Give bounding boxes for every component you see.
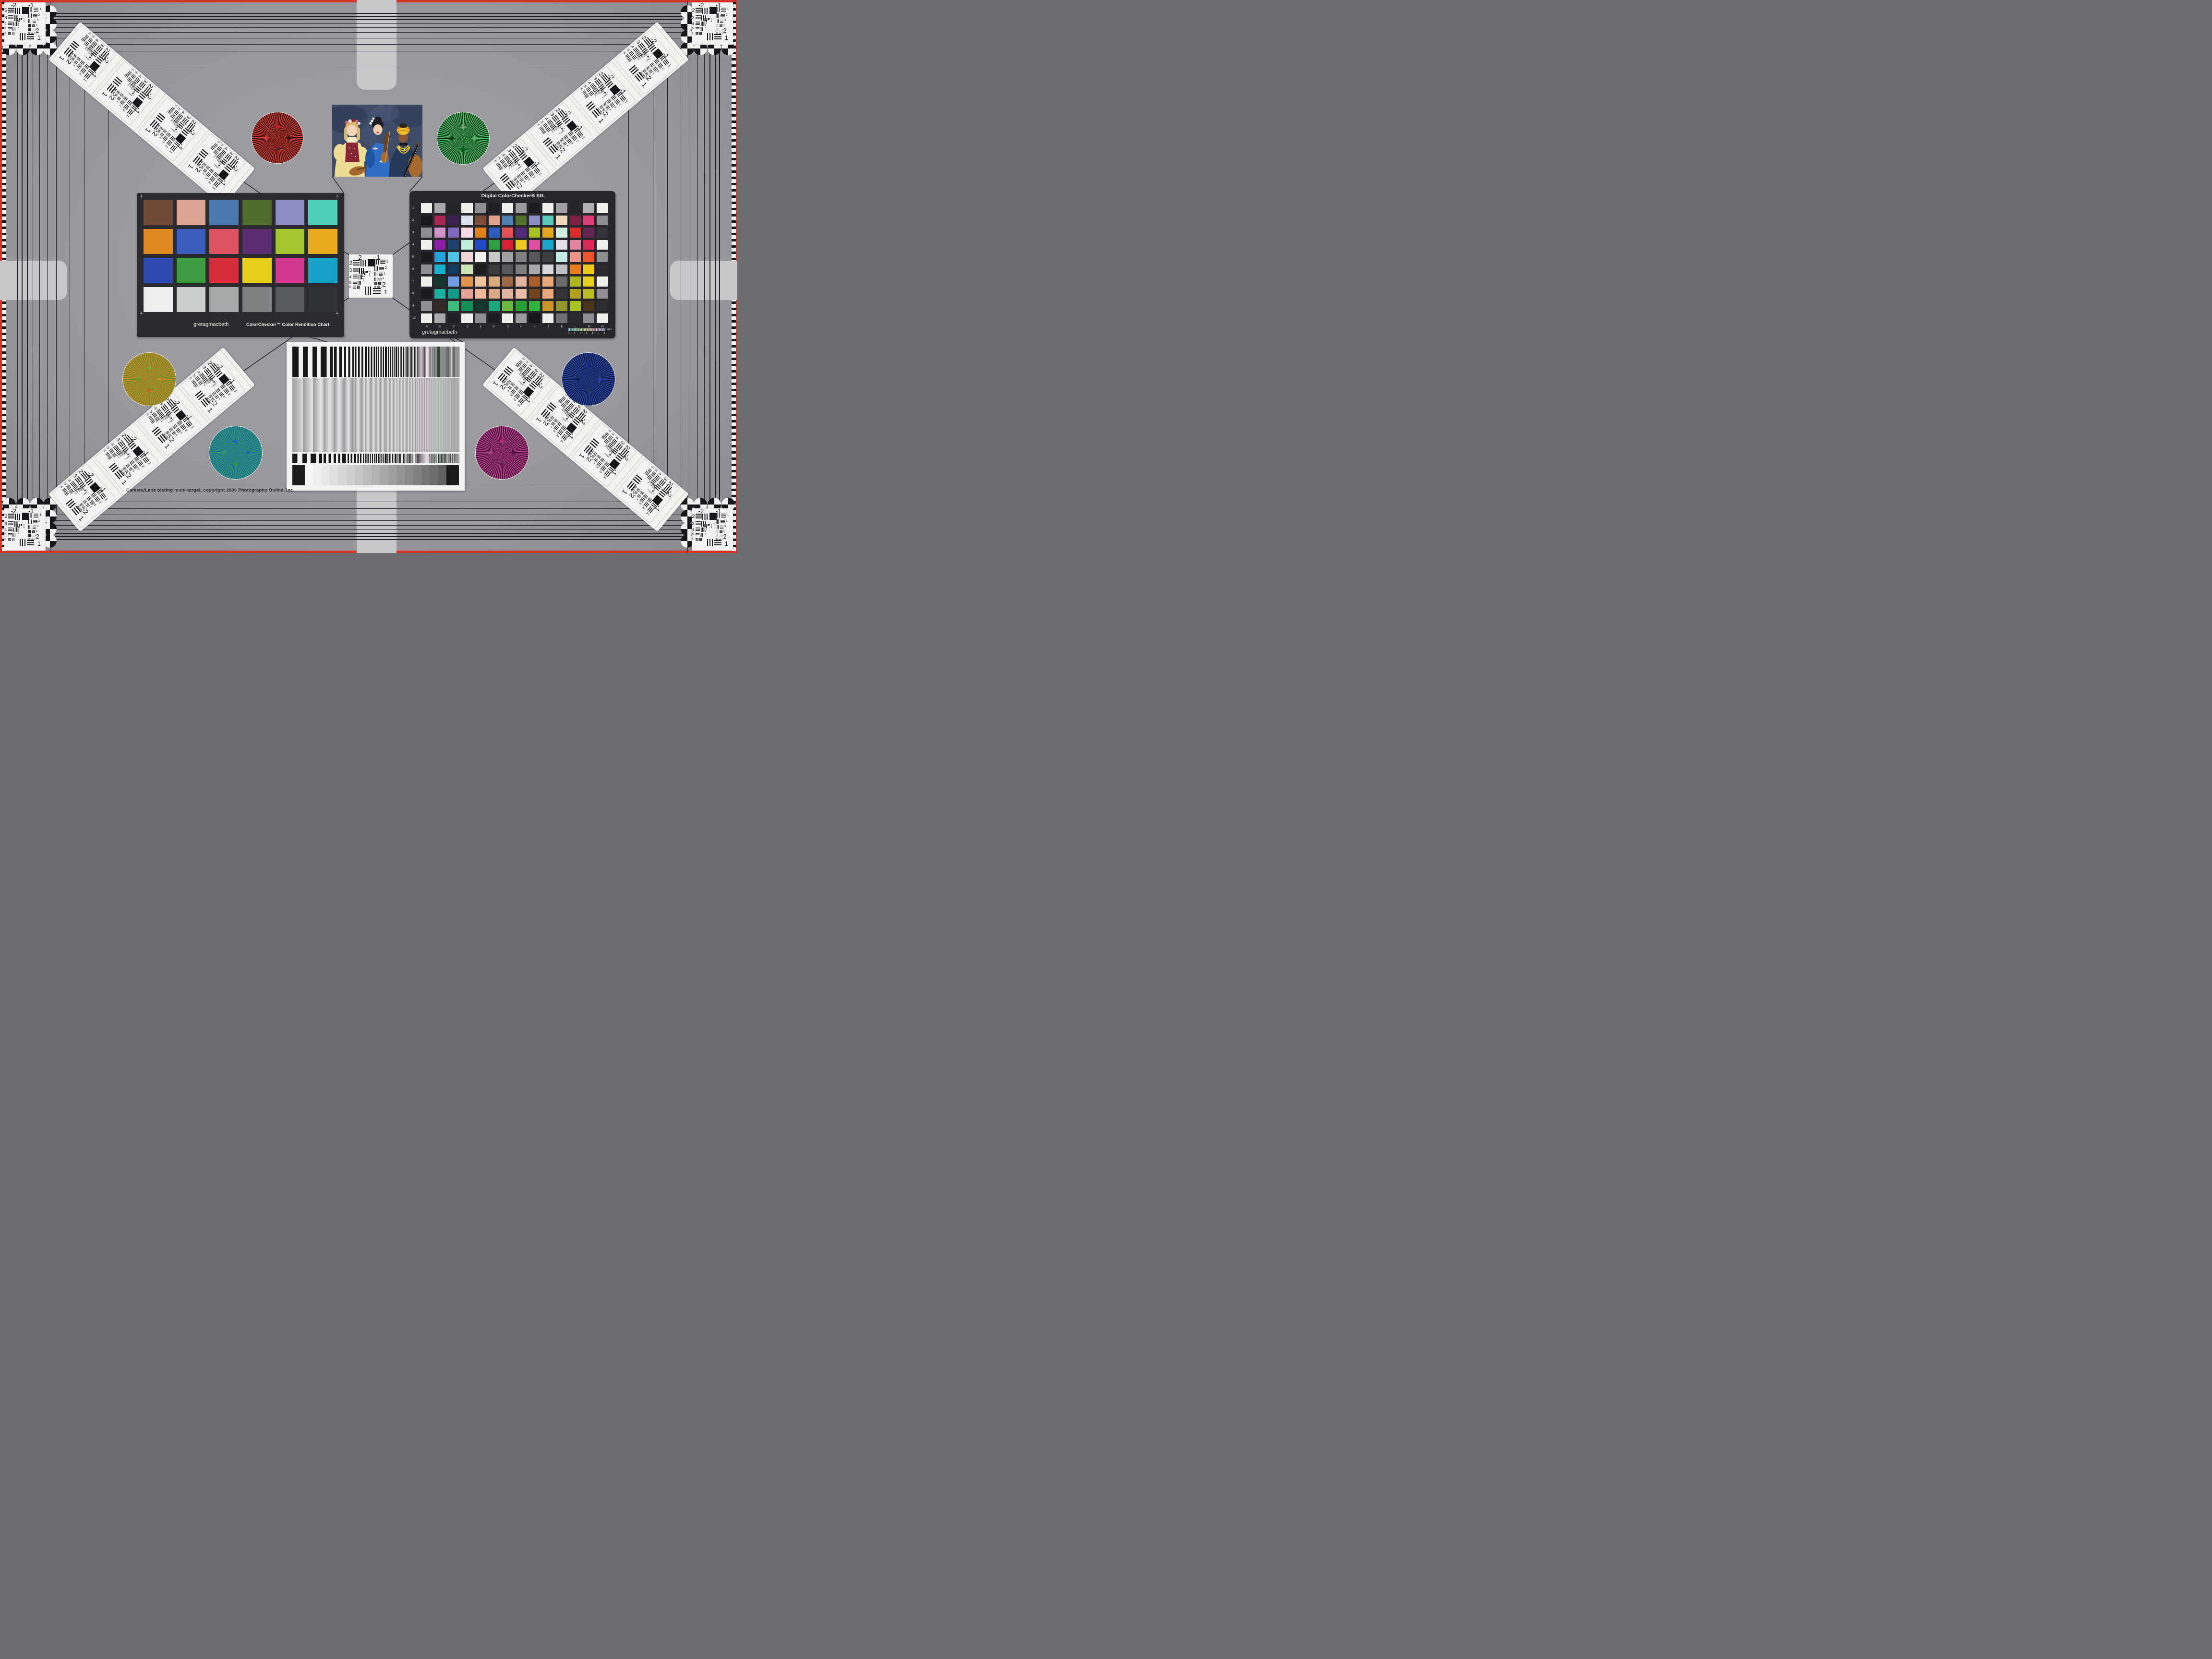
usaf-tribar-horizontal (696, 514, 702, 518)
usaf-center-square (604, 91, 606, 94)
usaf-inner-label: 1 (216, 381, 217, 383)
usaf-left-number: 5 (4, 533, 6, 537)
usaf-bottom-label-minus2: -2 (34, 534, 39, 540)
usaf-center-tribar (704, 18, 706, 20)
sg-patch (475, 264, 486, 275)
usaf-tribar-vertical (28, 534, 31, 537)
usaf-inner-label: 1 (176, 131, 178, 132)
sg-patch (502, 301, 513, 311)
usaf-bottom-tribar-horizontal (107, 83, 117, 93)
sg-row-label: 8 (412, 292, 414, 295)
sg-row-label: 3 (412, 231, 414, 234)
sg-col-label: D (467, 325, 469, 328)
sg-patch (489, 264, 500, 275)
sg-patch (502, 216, 513, 226)
grayscale-step (397, 465, 405, 485)
usaf-center-tribar (711, 21, 712, 22)
usaf-center-tribar (595, 95, 596, 96)
sg-patch (570, 264, 581, 275)
usaf-tribar-vertical (716, 28, 718, 31)
usaf-bottom-label-one: 1 (58, 54, 66, 61)
usaf-bottom-tribar-horizontal (193, 155, 203, 165)
usaf-tribar-vertical (28, 513, 32, 517)
usaf-center-tribar (18, 20, 20, 22)
sg-patch (516, 228, 527, 238)
usaf-center-tribar (704, 20, 705, 22)
usaf-inner-label: 1 (610, 456, 612, 458)
sg-patch (421, 216, 432, 226)
siemens-star-orange (122, 352, 176, 406)
usaf-bottom-tribar-horizontal (150, 119, 160, 129)
sg-patch (556, 203, 567, 213)
usaf-bottom-tribar-horizontal (714, 34, 721, 39)
usaf-right-number: 3 (37, 20, 38, 23)
usaf-center-tribar (24, 20, 24, 21)
sg-patch (502, 276, 513, 287)
usaf-tribar-vertical (28, 24, 31, 27)
sg-patch (461, 264, 472, 275)
sg-row-label: 5 (412, 256, 414, 259)
sg-ruler-number: 5 (598, 332, 599, 335)
usaf-center-tribar (18, 23, 19, 24)
usaf-center-tribar (24, 526, 24, 527)
sg-patch (570, 252, 581, 262)
usaf-tribar-horizontal (131, 74, 136, 79)
usaf-inner-label: 1 (523, 384, 525, 385)
usaf-center-tribar (16, 24, 18, 25)
usaf-center-tribar (369, 271, 371, 272)
usaf-inner-label: 1 (710, 522, 711, 524)
sg-patch (556, 252, 567, 262)
usaf-tribar-vertical (518, 389, 524, 395)
sg-patch (542, 228, 553, 238)
usaf-left-number: 2 (692, 514, 695, 519)
usaf-center-tribar (364, 276, 365, 277)
usaf-tribar-horizontal (647, 469, 651, 473)
usaf-inner-label: 1 (23, 16, 24, 18)
usaf-bottom-label-one: 1 (101, 91, 108, 98)
usaf-left-number: 6 (536, 124, 540, 127)
sg-patch (597, 264, 608, 275)
usaf-center-tribar (18, 526, 20, 528)
usaf-center-tribar (16, 524, 18, 526)
usaf-tribar-horizontal (600, 465, 606, 471)
usaf-tribar-horizontal (353, 268, 359, 272)
sg-patch (542, 301, 553, 311)
usaf-left-number: 4 (95, 38, 99, 42)
usaf-bottom-tribar-vertical (365, 287, 372, 294)
star-center-dot (462, 137, 465, 140)
usaf-bottom-label-one: 1 (621, 488, 628, 495)
sg-patch (556, 301, 567, 311)
usaf-tribar-horizontal (607, 435, 613, 441)
siemens-star-red (252, 112, 303, 164)
sg-patch (461, 276, 472, 287)
usaf-left-number: 4 (692, 528, 694, 532)
usaf-tribar-horizontal (8, 514, 14, 518)
usaf-tribar-horizontal (514, 393, 520, 399)
usaf-center-tribar (128, 91, 129, 93)
usaf-tribar-vertical (507, 379, 511, 383)
usaf-left-number: 5 (220, 143, 224, 146)
usaf-tribar-vertical (123, 96, 128, 101)
usaf-right-number: 1 (39, 7, 41, 11)
usaf-right-number: 1 (727, 7, 729, 11)
sg-patch (448, 301, 459, 311)
sg-patch (461, 203, 472, 213)
usaf-center-tribar (553, 130, 555, 132)
sg-patch (516, 264, 527, 275)
usaf-center-square (170, 417, 172, 419)
sg-patch (421, 228, 432, 238)
usaf-bottom-label-one: 1 (725, 541, 728, 547)
usaf-bottom-tribar-horizontal (584, 445, 594, 454)
usaf-tribar-vertical (28, 525, 31, 529)
usaf-right-number: 3 (724, 20, 726, 23)
sg-patch (556, 228, 567, 238)
usaf-center-tribar (16, 23, 18, 24)
sg-col-label: A (426, 325, 428, 328)
usaf-tribar-vertical (374, 259, 379, 264)
sg-row-label: 10 (412, 317, 416, 320)
sg-mm-ruler: 0123456mm (568, 328, 614, 336)
usaf-center-tribar (705, 533, 706, 534)
sg-patch (475, 301, 486, 311)
sg-col-label: J (547, 325, 549, 328)
usaf-left-number: 6 (102, 449, 106, 453)
classic-patch (209, 287, 239, 313)
usaf-tribar-vertical (596, 454, 601, 458)
camera-lens-test-target: -2-12345612345601-21-2-12345612345601-21… (0, 0, 737, 553)
usaf-tribar-horizontal (721, 514, 726, 517)
usaf-bottom-label-minus2: -2 (380, 281, 386, 288)
usaf-tribar-horizontal (163, 135, 168, 141)
usaf-right-number: 1 (39, 513, 41, 517)
usaf-center-tribar (16, 529, 18, 529)
usaf-center-tribar (16, 27, 17, 28)
usaf-left-number: 4 (4, 528, 6, 532)
usaf-left-number: 4 (349, 275, 351, 279)
usaf-center-tribar (24, 21, 24, 22)
usaf-center-tribar (704, 530, 705, 531)
usaf-tribar-horizontal (80, 68, 86, 74)
usaf-tribar-vertical (209, 168, 214, 173)
sg-ruler-number: 1 (574, 332, 575, 335)
usaf-bottom-tribar-horizontal (627, 481, 637, 490)
usaf-center-tribar (363, 280, 364, 281)
sg-patch (461, 313, 472, 324)
usaf-tribar-horizontal (721, 520, 725, 523)
usaf-bottom-label-one: 1 (187, 163, 194, 170)
sg-patch (421, 252, 432, 262)
usaf-tribar-vertical (716, 19, 719, 23)
usaf-center-tribar (704, 533, 705, 534)
usaf-tribar-vertical (28, 519, 32, 524)
usaf-center-tribar (646, 60, 647, 62)
grayscale-step (322, 465, 330, 485)
usaf-inner-label: 1 (132, 94, 134, 96)
sg-patch (475, 240, 486, 250)
usaf-center-tribar (18, 24, 19, 26)
sg-patch (502, 240, 513, 250)
usaf-left-number: 5 (91, 34, 95, 38)
usaf-tribar-vertical (127, 99, 133, 105)
usaf-tribar-horizontal (203, 168, 207, 173)
sg-ruler-number: 3 (586, 332, 587, 335)
usaf-tribar-horizontal (8, 528, 12, 531)
sg-patch (461, 240, 472, 250)
sg-patch (597, 216, 608, 226)
grayscale-step (421, 465, 430, 485)
usaf-bottom-label-one: 1 (725, 35, 728, 41)
sweep-low-bar-strip-fade-overlay (292, 454, 459, 463)
usaf-bottom-tribar-horizontal (498, 373, 507, 382)
classic-patch (276, 229, 305, 254)
usaf-tribar-vertical (28, 13, 32, 18)
usaf-center-square (213, 381, 216, 383)
classic-patch (177, 258, 206, 283)
usaf-center-tribar (204, 384, 205, 385)
usaf-tribar-horizontal (643, 501, 649, 507)
usaf-center-tribar (24, 18, 25, 19)
sg-patch (434, 228, 445, 238)
usaf-center-square (366, 271, 368, 273)
usaf-inner-label: 1 (649, 55, 651, 57)
usaf-center-tribar (214, 164, 215, 165)
usaf-tribar-horizontal (84, 35, 88, 39)
usaf-inner-label: 0 (361, 269, 362, 271)
usaf-left-number: 3 (349, 268, 352, 273)
usaf-center-tribar (170, 128, 172, 129)
usaf-tribar-horizontal (696, 22, 700, 25)
usaf-tribar-horizontal (209, 176, 215, 182)
sg-patch (448, 216, 459, 226)
sg-patch (542, 289, 553, 299)
usaf-left-number: 5 (626, 48, 630, 52)
usaf-center-tribar (511, 166, 513, 168)
usaf-left-number: 5 (63, 482, 67, 486)
usaf-inner-label: 1 (710, 16, 711, 18)
usaf-left-number: 2 (349, 261, 352, 266)
usaf-center-tribar (711, 527, 712, 528)
sg-patch (556, 276, 567, 287)
usaf-tribar-horizontal (8, 27, 12, 30)
usaf-center-tribar (704, 23, 705, 24)
usaf-center-square (127, 453, 129, 455)
sg-row-label: 6 (412, 268, 414, 271)
usaf-tribar-horizontal (720, 20, 724, 23)
sg-patch (529, 252, 540, 262)
usaf-center-tribar (16, 20, 18, 22)
usaf-tribar-horizontal (216, 146, 222, 151)
sg-patch (583, 276, 594, 287)
usaf-center-tribar (24, 524, 25, 525)
usaf-bottom-label-one: 1 (206, 406, 214, 413)
grayscale-step (363, 465, 372, 485)
usaf-bottom-label-one: 1 (120, 479, 128, 486)
usaf-left-number: 4 (4, 22, 6, 26)
usaf-inner-label: 1 (23, 522, 24, 524)
usaf-tribar-horizontal (8, 8, 14, 12)
classic-patch (308, 200, 337, 225)
usaf-tribar-horizontal (696, 538, 699, 541)
usaf-tribar-vertical (699, 32, 702, 36)
usaf-tribar-horizontal (117, 96, 121, 101)
usaf-center-tribar (212, 386, 213, 387)
usaf-tribar-vertical (647, 497, 653, 503)
sg-patch (448, 313, 459, 324)
usaf-center-tribar (638, 59, 639, 60)
usaf-tribar-horizontal (604, 432, 609, 436)
usaf-bottom-label-one: 1 (554, 153, 562, 160)
usaf-tribar-vertical (73, 54, 77, 58)
usaf-center-tribar (711, 18, 712, 19)
sg-patch (597, 252, 608, 262)
usaf-tribar-vertical (12, 538, 14, 541)
usaf-tribar-vertical (716, 7, 720, 12)
usaf-tribar-horizontal (594, 457, 598, 462)
usaf-left-number: 5 (149, 409, 153, 413)
usaf-right-number: 1 (386, 260, 389, 264)
usaf-resolution-chart: -2-12345612345601-21 (692, 508, 733, 551)
sg-patch (570, 228, 581, 238)
usaf-bottom-tribar-horizontal (714, 540, 721, 545)
usaf-center-tribar (24, 527, 24, 528)
sg-patch (516, 301, 527, 311)
usaf-tribar-horizontal (597, 461, 602, 466)
usaf-tribar-vertical (12, 533, 15, 537)
star-center-dot (234, 451, 238, 455)
sweep-top-bar-strip-fade-overlay (292, 347, 459, 377)
usaf-inner-label: 1 (129, 453, 131, 455)
usaf-center-tribar (16, 526, 18, 528)
classic-patch (276, 258, 305, 283)
usaf-bottom-label-one: 1 (163, 443, 171, 450)
sg-patch (583, 313, 594, 324)
usaf-tribar-vertical (551, 415, 554, 419)
usaf-tribar-vertical (593, 451, 597, 455)
sg-patch (529, 240, 540, 250)
usaf-center-tribar (120, 455, 121, 457)
usaf-tribar-vertical (510, 382, 515, 386)
usaf-center-tribar (18, 533, 19, 534)
usaf-center-tribar (706, 20, 707, 22)
usaf-tribar-vertical (553, 418, 558, 422)
usaf-left-number: 3 (692, 16, 694, 21)
sg-patch (434, 240, 445, 250)
usaf-bottom-label-one: 1 (597, 117, 605, 124)
usaf-tribar-horizontal (640, 497, 645, 503)
sg-row-label: 2 (412, 219, 414, 222)
usaf-tribar-horizontal (166, 140, 172, 146)
usaf-center-square (84, 489, 86, 491)
usaf-left-number: 3 (4, 16, 7, 21)
usaf-left-number: 5 (134, 70, 138, 74)
usaf-bottom-label-one: 1 (37, 541, 41, 547)
usaf-left-number: 6 (173, 103, 177, 107)
usaf-tribar-horizontal (87, 37, 93, 43)
usaf-bottom-label-minus2: -2 (721, 534, 726, 540)
sg-patch (461, 252, 472, 262)
usaf-tribar-vertical (643, 493, 648, 499)
grayscale-step (305, 465, 313, 485)
sg-patch (489, 276, 500, 287)
sg-patch (542, 276, 553, 287)
usaf-center-tribar (24, 23, 24, 24)
usaf-tribar-vertical (28, 530, 31, 533)
sg-patch (502, 228, 513, 238)
registration-plus-mark: + (336, 194, 338, 199)
sg-patch (475, 276, 486, 287)
sg-patch (570, 240, 581, 250)
star-center-dot (501, 451, 504, 455)
sg-col-label: H (520, 325, 522, 328)
classic-patch-grid: ++++ (137, 193, 344, 337)
usaf-center-tribar (18, 529, 19, 530)
sg-patch (489, 313, 500, 324)
usaf-resolution-chart: -2-12345612345601-21 (4, 508, 46, 551)
usaf-tribar-horizontal (650, 471, 656, 477)
siemens-star-green (437, 112, 490, 165)
usaf-center-tribar (562, 417, 563, 418)
usaf-tribar-vertical (514, 385, 519, 390)
usaf-bottom-label-one: 1 (578, 452, 586, 459)
usaf-left-number: 5 (192, 373, 196, 377)
sg-patch (556, 216, 567, 226)
usaf-center-tribar (711, 524, 712, 525)
registration-plus-mark: + (140, 311, 143, 316)
sg-patch (597, 301, 608, 311)
usaf-center-tribar (126, 458, 127, 459)
usaf-tribar-horizontal (379, 267, 384, 271)
usaf-inner-label: 0 (703, 522, 704, 524)
usaf-tribar-horizontal (8, 15, 13, 20)
sg-patch (597, 203, 608, 213)
usaf-bottom-tribar-horizontal (541, 409, 551, 418)
usaf-center-tribar (361, 271, 363, 273)
usaf-center-tribar (361, 280, 362, 281)
sg-patch (516, 240, 527, 250)
usaf-inner-label: 0 (16, 16, 17, 18)
usaf-inner-label: 1 (218, 167, 220, 168)
usaf-tribar-horizontal (696, 27, 699, 30)
usaf-center-tribar (705, 27, 706, 28)
usaf-center-tribar (369, 273, 370, 274)
sg-col-label: G (507, 325, 509, 328)
usaf-left-number: 6 (692, 538, 693, 541)
usaf-center-tribar (560, 132, 561, 134)
usaf-center-tribar (706, 529, 707, 530)
usaf-tribar-vertical (716, 13, 719, 18)
sg-patch (475, 228, 486, 238)
usaf-tribar-horizontal (353, 281, 357, 284)
sg-ruler-number: 6 (603, 332, 605, 335)
registration-plus-mark: + (140, 194, 143, 199)
usaf-tribar-vertical (117, 90, 120, 94)
usaf-tribar-vertical (374, 282, 377, 285)
sg-patch (570, 203, 581, 213)
usaf-tribar-horizontal (34, 8, 38, 12)
sg-patch (434, 203, 445, 213)
sg-patch (461, 289, 472, 299)
usaf-center-tribar (19, 524, 20, 526)
sg-patch (489, 252, 500, 262)
usaf-inner-label: 1 (566, 420, 568, 421)
usaf-left-number: 6 (4, 538, 6, 541)
sg-row-label: 7 (412, 280, 414, 283)
usaf-center-tribar (369, 274, 370, 275)
usaf-tribar-horizontal (8, 22, 12, 25)
